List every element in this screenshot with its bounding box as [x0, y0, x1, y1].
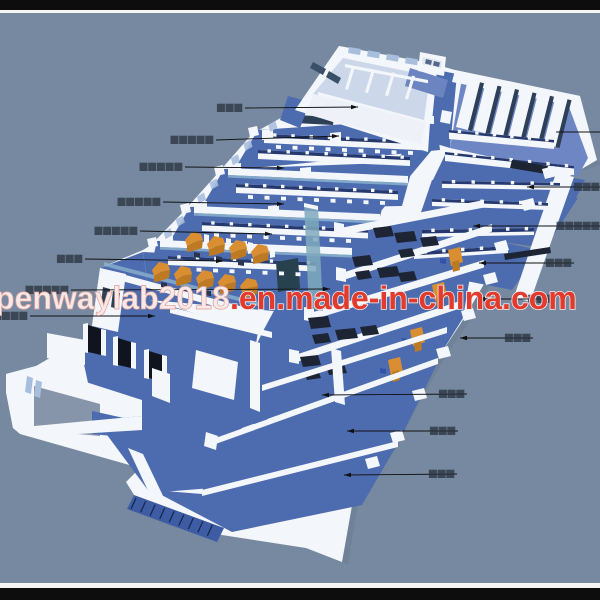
svg-text:.en.made-in-china.com: .en.made-in-china.com [230, 280, 577, 316]
svg-text:penwaylab2018: penwaylab2018 [0, 280, 230, 316]
